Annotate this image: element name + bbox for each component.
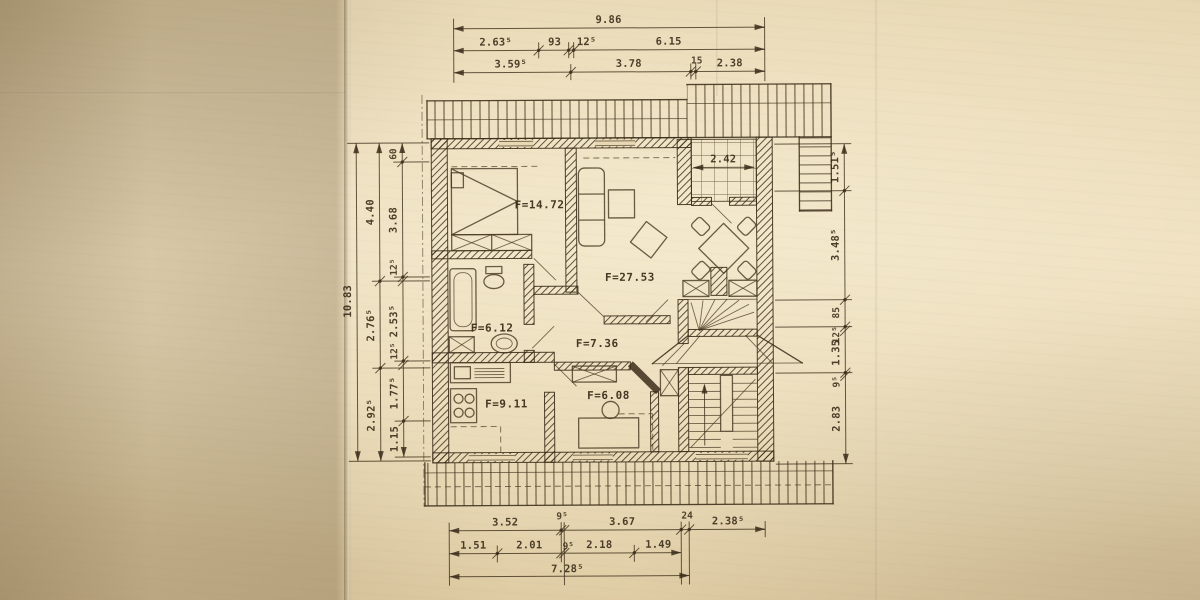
desk <box>579 418 639 448</box>
dim-left: 12⁵ <box>389 258 400 275</box>
wall-winder-south <box>688 329 757 336</box>
dim-top: 12⁵ <box>577 36 597 48</box>
stove <box>450 389 476 423</box>
dim-top: 2.38 <box>717 57 743 69</box>
wall-bath-kitchen <box>432 352 554 363</box>
wall-left <box>431 139 449 463</box>
stair-divider <box>720 375 732 431</box>
dormer-outline <box>652 335 802 364</box>
hall-area-label: F=7.36 <box>576 337 619 350</box>
child-room-area-label: F=6.08 <box>587 389 630 402</box>
dim-top: 3.78 <box>616 58 642 70</box>
dim-left: 1.77⁵ <box>388 377 400 410</box>
dim-bottom: 2.38⁵ <box>712 515 745 527</box>
bedroom-area-label: F=14.72 <box>515 198 565 211</box>
stairs <box>652 280 803 448</box>
duct-shaft <box>660 370 678 396</box>
wall-hall-north-left <box>534 286 578 294</box>
room-labels: F=14.72 F=27.53 F=6.12 F=7.36 F=9.11 F=6… <box>470 198 655 411</box>
wall-balcony-west <box>677 140 691 205</box>
counter <box>450 362 510 382</box>
chimney <box>711 267 727 295</box>
bath-area-label: F=6.12 <box>471 321 514 334</box>
dim-left: 2.76⁵ <box>365 309 377 342</box>
wall-bath-east <box>524 264 534 324</box>
window <box>469 454 515 461</box>
bath-fixtures <box>449 266 517 353</box>
living-area-label: F=27.53 <box>605 271 655 284</box>
dimensions-bottom: 3.52 9⁵ 3.67 24 2.38⁵ 1.51 2.01 9⁵ 2.18 … <box>449 510 765 586</box>
child-room-furniture <box>572 366 638 448</box>
dim-bottom: 24 <box>681 511 693 522</box>
dimensions-top: 9.86 2.63⁵ 93 12⁵ 6.15 3.59⁵ 3.78 15 2.3… <box>454 13 765 83</box>
wall-bedroom-living <box>565 148 577 292</box>
floor-plan-drawing: 2.42 <box>0 0 1200 600</box>
door-bedroom <box>534 258 556 280</box>
dim-bottom: 1.49 <box>645 539 671 551</box>
wardrobe <box>452 234 532 250</box>
dim-top: 2.63⁵ <box>479 36 512 48</box>
dim-top: 6.15 <box>656 36 682 48</box>
dim-bottom: 9⁵ <box>563 541 575 552</box>
dim-left: 1.15 <box>389 426 401 452</box>
window <box>573 453 613 460</box>
door-balcony <box>711 203 731 223</box>
dim-top: 15 <box>691 55 703 66</box>
wall-kitchen-child <box>544 392 554 462</box>
roof-band-top <box>427 100 687 139</box>
dim-left: 2.53⁵ <box>388 305 400 338</box>
dim-left: 2.92⁵ <box>366 399 378 432</box>
dim-bottom: 3.67 <box>609 516 635 528</box>
dim-left: 60 <box>388 148 399 160</box>
dim-bottom: 9⁵ <box>556 511 568 522</box>
wall-right <box>756 137 774 461</box>
dim-bottom: 3.52 <box>492 516 518 528</box>
scanned-floor-plan: 2.42 <box>0 0 1200 600</box>
dim-bottom-total: 7.28⁵ <box>551 563 584 575</box>
window <box>696 453 748 460</box>
chair <box>737 260 758 280</box>
stool <box>602 401 619 418</box>
door-leaves <box>531 203 732 386</box>
dining-table <box>699 223 749 273</box>
balcony: 2.42 <box>691 139 756 201</box>
kitchen-area-label: F=9.11 <box>485 397 528 410</box>
dim-bottom: 1.51 <box>460 540 486 552</box>
washbasin <box>491 334 517 353</box>
dim-right: 85 <box>831 307 842 319</box>
dimensions-left: 10.83 4.40 2.76⁵ 2.92⁵ 60 3.68 12⁵ 2.53⁵… <box>341 143 431 461</box>
window <box>499 140 533 147</box>
pillow <box>451 173 463 188</box>
dim-bottom: 2.18 <box>586 539 612 551</box>
winder-stair <box>688 299 757 330</box>
window <box>595 139 635 146</box>
door-bath <box>532 326 554 348</box>
dim-right: 9⁵ <box>831 376 842 388</box>
dim-right: 2.83 <box>831 406 843 432</box>
wall-bedroom-bath <box>432 250 532 259</box>
wall-child-diagonal <box>630 364 658 392</box>
dim-right: 3.48⁵ <box>830 228 842 261</box>
dim-left-total: 10.83 <box>342 285 354 318</box>
dim-bottom: 2.01 <box>516 539 542 551</box>
wall-stair-west-lower <box>678 368 688 452</box>
dim-left: 3.68 <box>388 207 400 233</box>
dim-left: 12⁵ <box>389 342 400 359</box>
door-living-hall-left <box>578 292 604 317</box>
chair <box>690 216 711 236</box>
armchair <box>630 222 666 258</box>
wall-child-east <box>650 392 658 452</box>
wall-stair-north <box>688 367 757 374</box>
chair <box>736 216 756 237</box>
wall-top <box>431 138 691 149</box>
balcony-width-label: 2.42 <box>710 153 736 165</box>
lower-stair <box>688 375 757 447</box>
toilet <box>484 267 504 289</box>
dim-right: 1.35 <box>830 340 842 366</box>
dim-top: 3.59⁵ <box>494 58 527 70</box>
bed <box>451 168 517 234</box>
shower <box>449 337 474 353</box>
eave-line <box>422 95 424 507</box>
dim-top: 93 <box>548 36 561 48</box>
wall-hall-north-right <box>604 316 670 324</box>
roof-band-bottom <box>425 461 833 506</box>
stair-break-line <box>690 379 755 447</box>
sofa <box>578 168 604 246</box>
dim-left: 4.40 <box>364 199 376 225</box>
kitchen-fixtures <box>450 362 510 422</box>
dim-top-total: 9.86 <box>595 14 621 26</box>
side-table <box>608 190 634 218</box>
sink <box>454 367 504 379</box>
dim-right: 1.51⁵ <box>829 150 841 183</box>
chair <box>691 260 711 281</box>
